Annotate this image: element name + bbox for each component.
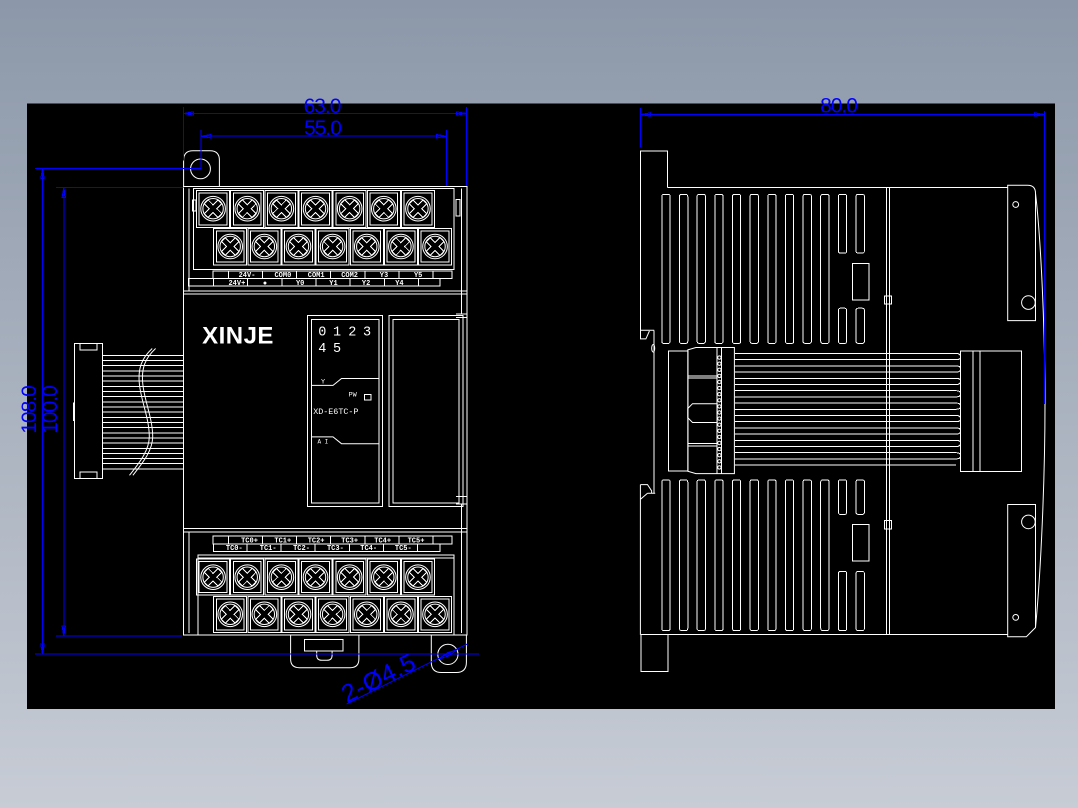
svg-text:TC2-: TC2- <box>293 545 310 553</box>
svg-text:24V+: 24V+ <box>228 280 245 288</box>
svg-text:TC1-: TC1- <box>260 545 277 553</box>
svg-text:TC0-: TC0- <box>226 545 243 553</box>
svg-text:108.0: 108.0 <box>18 386 41 434</box>
svg-text:5: 5 <box>333 342 341 357</box>
svg-text:XINJE: XINJE <box>202 323 274 350</box>
svg-text:A I: A I <box>317 438 328 445</box>
svg-text:TC3-: TC3- <box>327 545 344 553</box>
svg-text:4: 4 <box>318 342 326 357</box>
svg-text:3: 3 <box>363 325 371 340</box>
svg-text:2: 2 <box>348 325 356 340</box>
svg-text:Y1: Y1 <box>329 280 337 288</box>
svg-text:PW: PW <box>349 392 358 400</box>
svg-text:Y4: Y4 <box>395 280 403 288</box>
svg-text:63.0: 63.0 <box>304 95 341 118</box>
svg-text:1: 1 <box>333 325 341 340</box>
svg-text:100.0: 100.0 <box>39 386 62 434</box>
svg-text:●: ● <box>263 280 267 288</box>
svg-text:COM2: COM2 <box>341 272 358 280</box>
svg-text:Y: Y <box>321 378 325 386</box>
svg-text:Y2: Y2 <box>362 280 370 288</box>
svg-text:COM0: COM0 <box>274 272 291 280</box>
svg-text:0: 0 <box>318 325 326 340</box>
svg-text:TC4-: TC4- <box>360 545 377 553</box>
svg-text:TC5-: TC5- <box>395 545 412 553</box>
svg-text:XD-E6TC-P: XD-E6TC-P <box>313 407 358 417</box>
svg-text:Y0: Y0 <box>296 280 304 288</box>
